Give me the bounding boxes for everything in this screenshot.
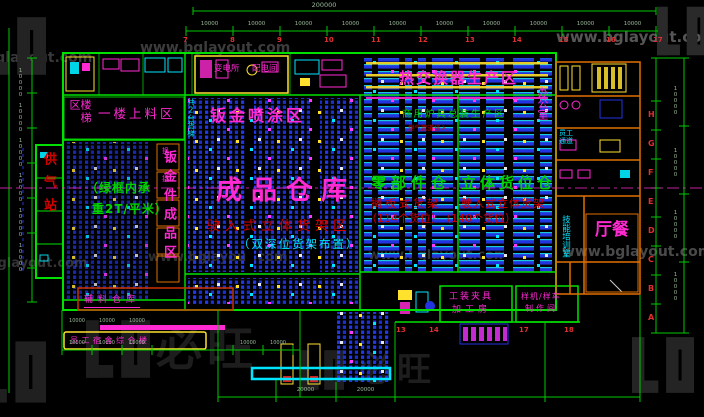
area-heat-exchange: 热交换器生产区 — [399, 71, 518, 86]
dim-seg-left: 10000 — [17, 173, 23, 201]
grid-number: 7 — [183, 37, 188, 44]
note-load-1: （绿框内承 — [86, 182, 151, 194]
area-tooling-1: 工装夹具 — [449, 293, 493, 302]
grid-number: 11 — [371, 37, 381, 44]
grid-number-bottom: 17 — [519, 327, 529, 334]
grid-number-bottom: 18 — [564, 327, 574, 334]
note-finished-2: （双深位货架布置） — [238, 239, 360, 251]
grid-number: 9 — [277, 37, 282, 44]
dim-seg: 10000 — [280, 22, 327, 28]
dim-seg-bottom: 10000 — [122, 319, 152, 324]
grid-number: 10 — [324, 37, 334, 44]
area-tooling-2: 加工房 — [452, 306, 491, 315]
dim-seg: 10000 — [186, 22, 233, 28]
area-aux-warehouse: 辅料仓库 — [84, 296, 140, 308]
dim-seg-right: 10000 — [672, 86, 678, 114]
grid-letter: H — [648, 111, 655, 119]
dim-seg-bottom: 10000 — [122, 341, 152, 346]
dim-total: 200000 — [296, 2, 352, 9]
dim-dock: 20000 — [336, 388, 395, 394]
dim-seg: 10000 — [515, 22, 562, 28]
note-highbay-1: 驶入式立体货架 — [461, 198, 545, 209]
area-first-floor-loading: 一楼上料区 — [98, 108, 176, 121]
dim-seg-bottom: 10000 — [62, 341, 92, 346]
grid-number: 8 — [230, 37, 235, 44]
dim-seg-left: 10000 — [17, 103, 23, 131]
dim-seg-bottom: 10000 — [263, 341, 293, 346]
area-office: 办公室 — [537, 87, 548, 127]
area-prototype-1: 样机/样车 — [521, 293, 561, 301]
dim-seg: 10000 — [374, 22, 421, 28]
grid-number: 15 — [559, 37, 569, 44]
note-gas: 燃气管道接入 — [408, 125, 447, 132]
dim-seg-bottom: 10000 — [92, 341, 122, 346]
grid-number-bottom: 14 — [429, 327, 439, 334]
dim-seg-bottom: 10000 — [233, 341, 263, 346]
area-highbay-warehouse: 立体货位仓 — [461, 176, 556, 191]
cad-floorplan: www.bglayout.com www.bglayout.com www.bg… — [0, 0, 704, 417]
area-substation: 变电所 — [214, 65, 240, 74]
grid-number: 12 — [418, 37, 428, 44]
area-power-room: 配电间 — [252, 65, 278, 74]
note-highbay-2: （140个货位） — [440, 213, 516, 224]
area-parts-warehouse: 零部件仓 — [371, 176, 451, 191]
grid-letter: C — [648, 256, 654, 264]
dim-seg-left: 10000 — [17, 208, 23, 236]
corridor-room-label: 接 — [162, 176, 169, 183]
dim-seg: 10000 — [233, 22, 280, 28]
dim-seg-left: 10000 — [17, 243, 23, 271]
area-spray: 钣金喷涂区 — [210, 108, 305, 124]
grid-letter: D — [648, 227, 655, 235]
dim-seg: 10000 — [609, 22, 656, 28]
area-training-room: 技能培训室 — [561, 215, 570, 265]
grid-number-bottom: 13 — [396, 327, 406, 334]
grid-number: 14 — [512, 37, 522, 44]
grid-number: 16 — [606, 37, 616, 44]
dim-seg: 10000 — [327, 22, 374, 28]
area-prototype-2: 制作间 — [525, 305, 558, 313]
dim-seg: 10000 — [468, 22, 515, 28]
grid-letter: E — [648, 198, 653, 206]
note-parts-2: （114个货位） — [366, 213, 442, 224]
grid-letter: G — [648, 140, 655, 148]
note-load-2: 重2T/平米） — [92, 203, 168, 215]
grid-letter: B — [648, 285, 654, 293]
dim-seg: 10000 — [421, 22, 468, 28]
area-canteen: 餐厅 — [592, 220, 626, 264]
dim-seg: 10000 — [562, 22, 609, 28]
note-elevator: 共2台货梯 — [187, 98, 195, 144]
area-finished-goods: 成品仓库 — [216, 178, 356, 204]
dim-seg-left: 10000 — [17, 138, 23, 166]
area-stove-line: 商用炉具总装生产区 — [402, 110, 506, 120]
area-sheet-metal-zone: 钣金件成品区 — [162, 150, 175, 282]
dim-seg-right: 10000 — [672, 210, 678, 238]
note-finished-1: 驶入式立体货架区 — [207, 220, 351, 233]
grid-letter: A — [648, 314, 654, 322]
dim-seg-right: 10000 — [672, 148, 678, 176]
dim-seg-bottom: 10000 — [62, 319, 92, 324]
grid-number: 13 — [465, 37, 475, 44]
grid-letter: F — [648, 169, 653, 177]
corridor-room-label: 换 — [162, 148, 169, 155]
area-gas-station: 供气站 — [42, 152, 55, 252]
dim-seg-left: 10000 — [17, 68, 23, 96]
dim-seg-right: 10000 — [672, 272, 678, 300]
area-stairs: 楼梯区 — [69, 99, 91, 137]
dim-seg-bottom: 10000 — [92, 319, 122, 324]
grid-number: 17 — [653, 37, 663, 44]
dim-dock: 20000 — [276, 388, 335, 394]
area-staff-passage: 员工通道 — [559, 129, 575, 145]
note-parts-1: 搁板式货架 — [371, 198, 441, 209]
